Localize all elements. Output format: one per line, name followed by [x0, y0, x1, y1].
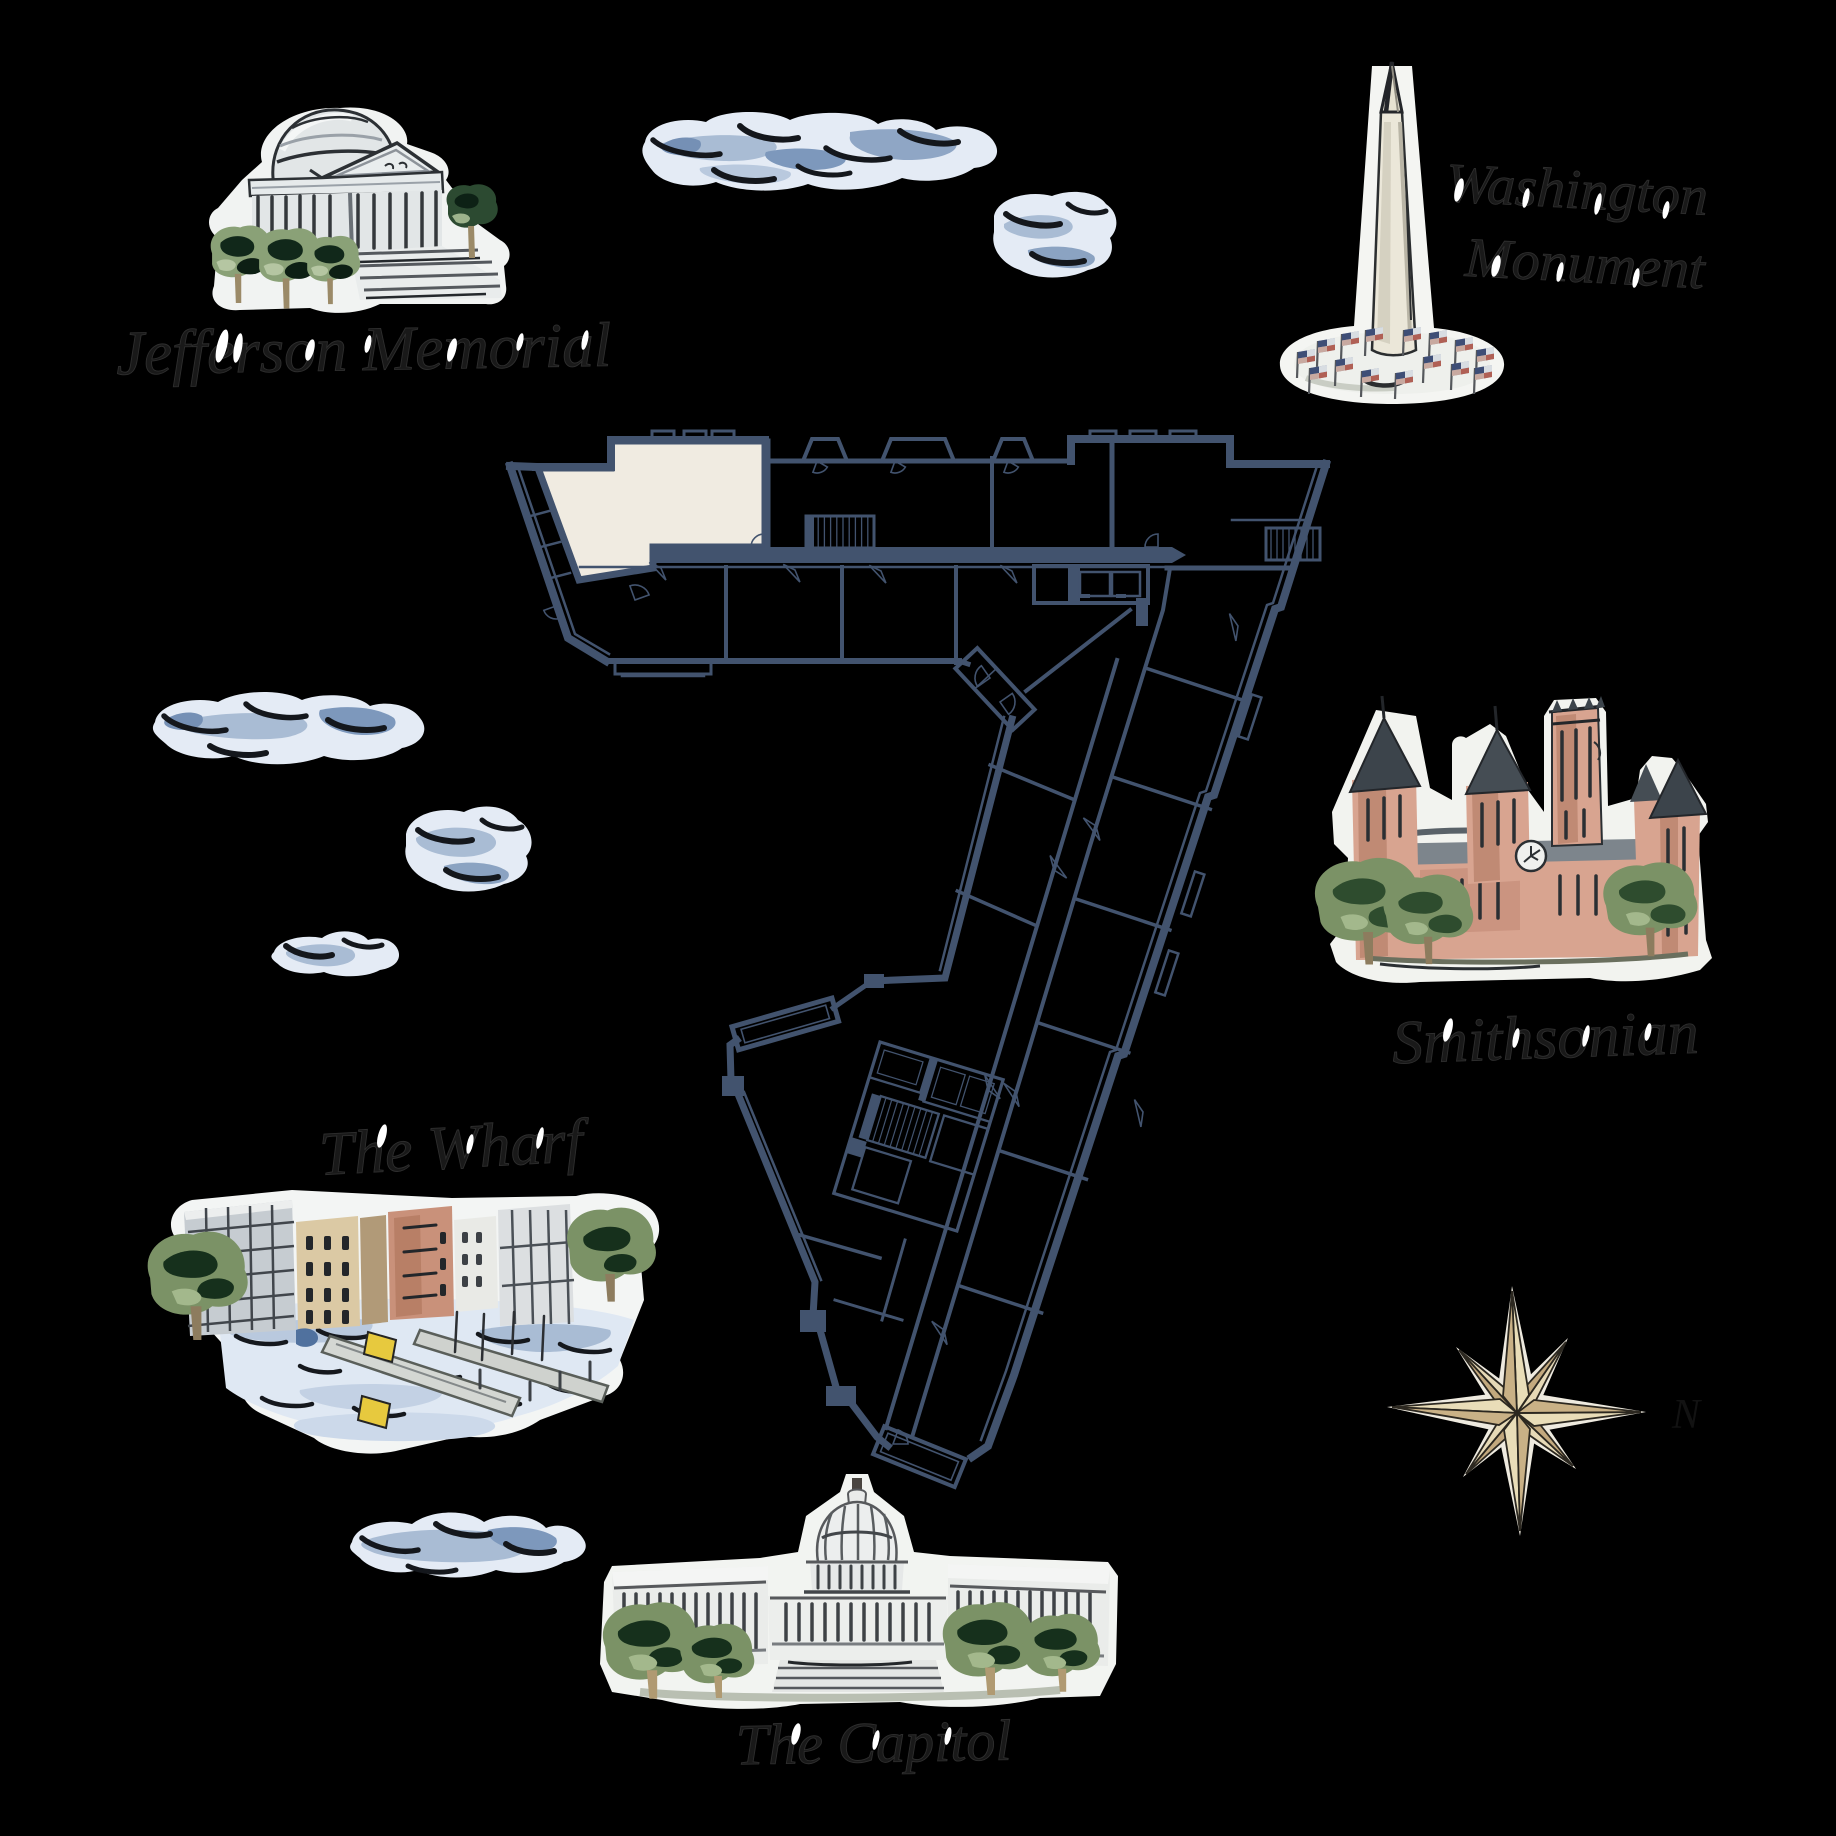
svg-text:Smithsonian: Smithsonian: [1391, 999, 1700, 1078]
svg-text:The Wharf: The Wharf: [318, 1107, 592, 1189]
svg-text:N: N: [1671, 1392, 1702, 1438]
svg-text:Jefferson Memorial: Jefferson Memorial: [115, 310, 611, 389]
